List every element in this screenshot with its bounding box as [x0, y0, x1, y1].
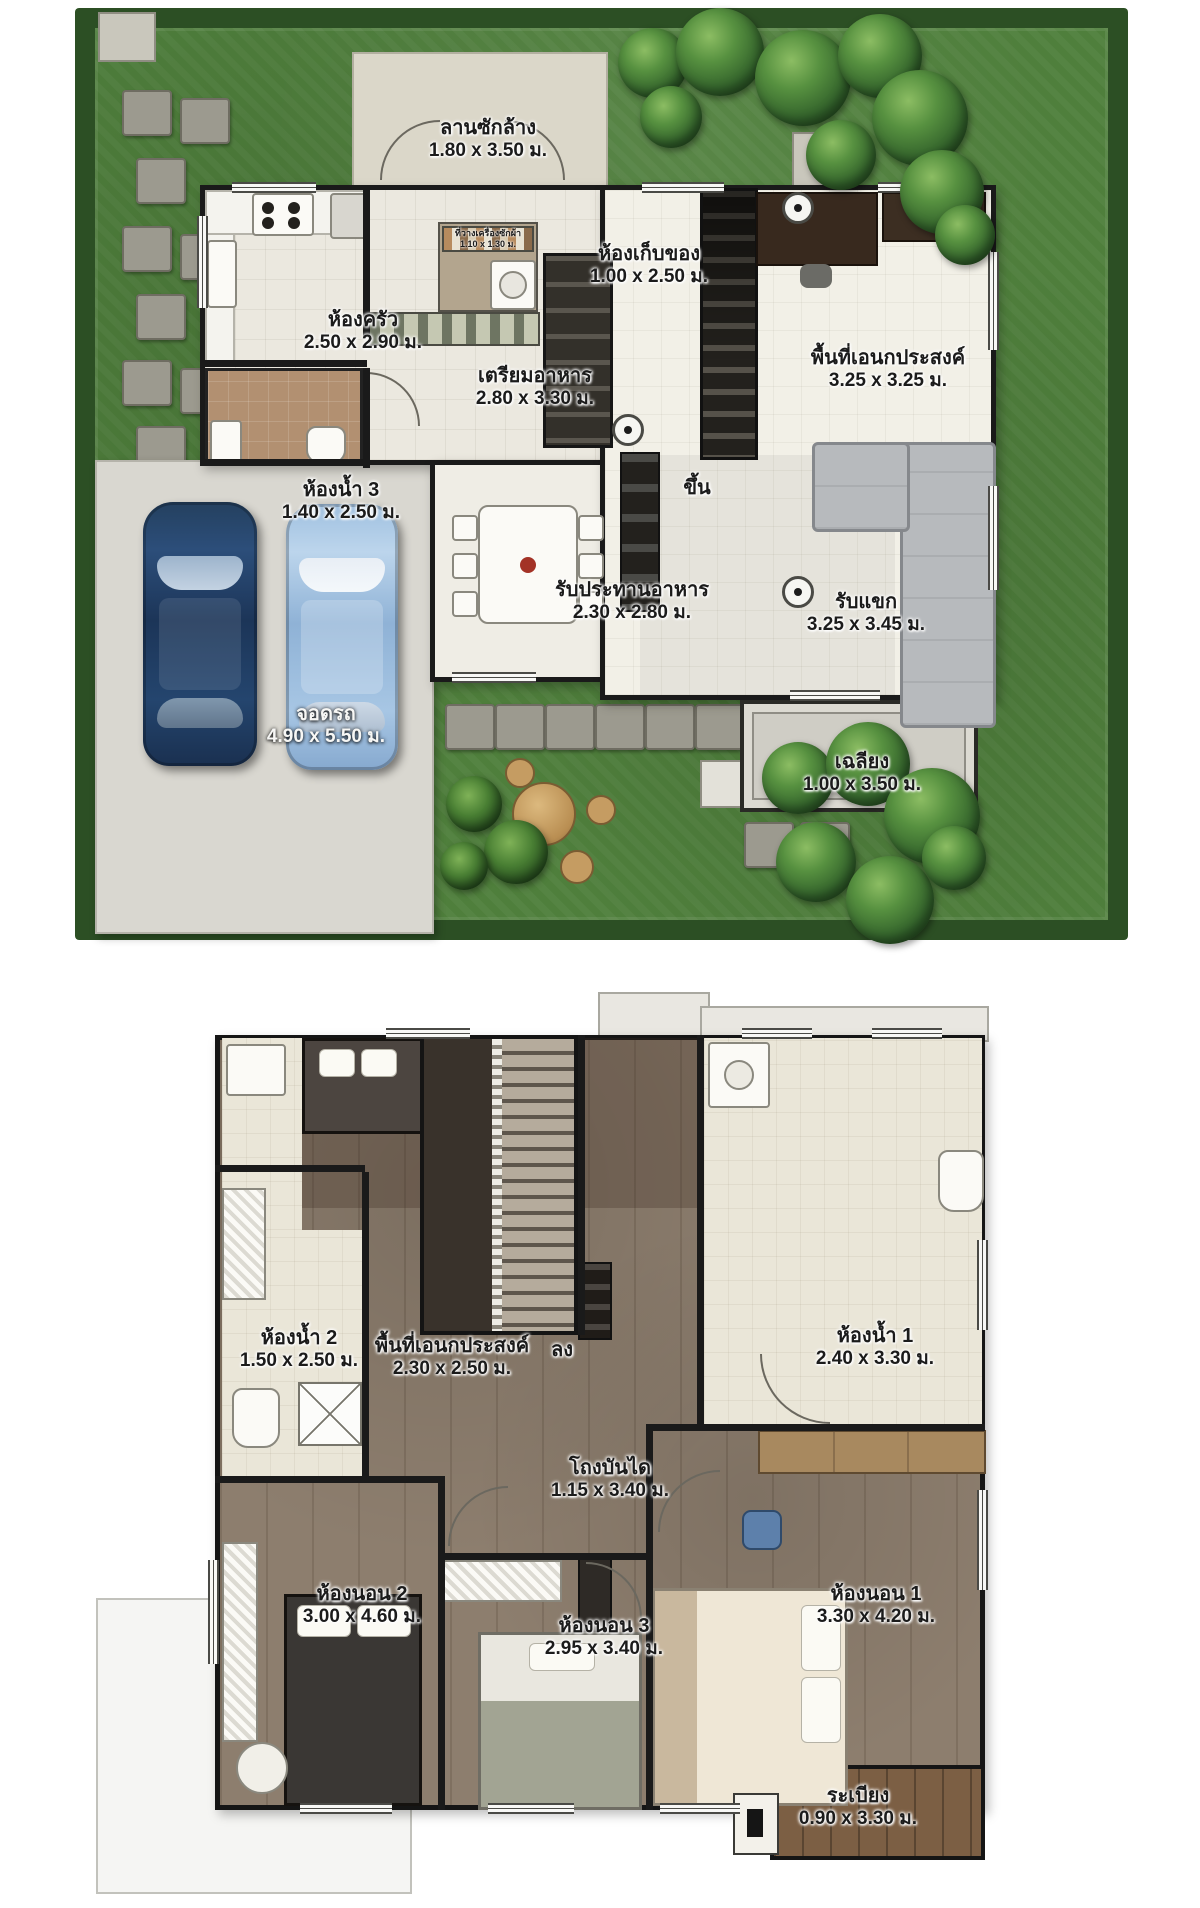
- tree-icon: [935, 205, 995, 265]
- desk-chair-icon: [800, 264, 832, 288]
- room-label-bedroom3: ห้องนอน 32.95 x 3.40 ม.: [545, 1614, 663, 1661]
- garden-stool-icon: [505, 758, 535, 788]
- bathroom-sink-icon: [210, 420, 242, 464]
- chair-icon: [452, 553, 478, 579]
- shower-icon: [298, 1382, 362, 1446]
- window: [232, 182, 316, 193]
- stepping-stone: [180, 98, 230, 144]
- chair-icon: [578, 553, 604, 579]
- room-label-food-prep: เตรียมอาหาร2.80 x 3.30 ม.: [476, 364, 594, 411]
- stepping-stone: [122, 226, 172, 272]
- palm-icon: [484, 820, 548, 884]
- garden-stool-icon: [586, 795, 616, 825]
- wardrobe-icon: [222, 1542, 258, 1742]
- stepping-stone: [545, 704, 595, 750]
- wardrobe-bed1-icon: [758, 1430, 986, 1474]
- window: [452, 672, 536, 683]
- tree-icon: [676, 8, 764, 96]
- chair-icon: [236, 1742, 288, 1794]
- wall: [362, 1172, 369, 1480]
- wall: [646, 1424, 985, 1431]
- palm-icon: [440, 842, 488, 890]
- wardrobe-icon: [222, 1188, 266, 1300]
- wall: [578, 1035, 585, 1335]
- stove-icon: [252, 193, 314, 236]
- room-label-balcony: ระเบียง0.90 x 3.30 ม.: [799, 1784, 917, 1831]
- stepping-stone: [495, 704, 545, 750]
- toilet-icon: [232, 1388, 280, 1448]
- stepping-stone: [445, 704, 495, 750]
- chair-icon: [452, 591, 478, 617]
- wall: [363, 368, 370, 468]
- wall: [438, 1476, 445, 1810]
- window: [660, 1803, 740, 1814]
- wall: [215, 1165, 365, 1172]
- tree-icon: [922, 826, 986, 890]
- sofa-icon: [900, 442, 996, 728]
- floor-plan-document: ลานซักล้าง1.80 x 3.50 ม. ห้องครัว2.50 x …: [0, 0, 1200, 1908]
- car-icon-dark-blue: [143, 502, 257, 766]
- window: [977, 1490, 988, 1590]
- ceiling-light-icon: [612, 414, 644, 446]
- bathroom-sink-icon: [708, 1042, 770, 1108]
- stepping-stone: [695, 704, 745, 750]
- stepping-stone: [122, 90, 172, 136]
- room-label-porch: เฉลียง1.00 x 3.50 ม.: [803, 750, 921, 797]
- wall: [215, 1476, 445, 1483]
- fridge-icon: [330, 193, 367, 239]
- room-label-multipurpose2: พื้นที่เอนกประสงค์2.30 x 2.50 ม.: [375, 1334, 529, 1381]
- window: [488, 1803, 574, 1814]
- room-label-storage: ห้องเก็บของ1.00 x 2.50 ม.: [590, 242, 708, 289]
- paver-pad: [98, 12, 156, 62]
- window: [988, 252, 999, 350]
- first-floor-plan: ลานซักล้าง1.80 x 3.50 ม. ห้องครัว2.50 x …: [0, 0, 1200, 958]
- room-label-bedroom1: ห้องนอน 13.30 x 4.20 ม.: [817, 1582, 935, 1629]
- wardrobe-icon: [438, 1560, 562, 1602]
- rear-window: [157, 698, 243, 728]
- stepping-stone: [122, 360, 172, 406]
- car-roof: [301, 600, 383, 694]
- window: [790, 690, 880, 701]
- window: [386, 1028, 470, 1039]
- room-label-stair-hall: โถงบันได1.15 x 3.40 ม.: [551, 1456, 669, 1503]
- chair-icon: [452, 515, 478, 541]
- room-label-kitchen: ห้องครัว2.50 x 2.90 ม.: [304, 308, 422, 355]
- windshield: [157, 556, 243, 590]
- washing-machine-icon: [490, 260, 536, 310]
- wall: [203, 360, 367, 367]
- room-label-dining: รับประทานอาหาร2.30 x 2.80 ม.: [555, 578, 709, 625]
- room-label-bedroom2: ห้องนอน 23.00 x 4.60 ม.: [303, 1582, 421, 1629]
- stair-railing: [492, 1039, 502, 1331]
- armchair-icon: [742, 1510, 782, 1550]
- room-label-living: รับแขก3.25 x 3.45 ม.: [807, 590, 925, 637]
- staircase-down: [420, 1035, 578, 1335]
- tree-icon: [806, 120, 876, 190]
- tree-icon: [640, 86, 702, 148]
- tree-icon: [755, 30, 851, 126]
- room-label-bathroom3: ห้องน้ำ 31.40 x 2.50 ม.: [282, 478, 400, 525]
- stepping-stone: [136, 294, 186, 340]
- window: [300, 1803, 392, 1814]
- stepping-stone: [645, 704, 695, 750]
- stepping-stone: [136, 158, 186, 204]
- window: [197, 216, 208, 308]
- windshield: [299, 558, 385, 592]
- palm-icon: [446, 776, 502, 832]
- bathroom-sink-icon: [226, 1044, 286, 1096]
- sofa-icon: [812, 442, 910, 532]
- chair-icon: [578, 515, 604, 541]
- desk-icon: [756, 192, 878, 266]
- room-label-multipurpose: พื้นที่เอนกประสงค์3.25 x 3.25 ม.: [811, 346, 965, 393]
- room-label-bathroom2: ห้องน้ำ 21.50 x 2.50 ม.: [240, 1326, 358, 1373]
- toilet-icon: [938, 1150, 984, 1212]
- window: [742, 1028, 812, 1039]
- room-label-bathroom1: ห้องน้ำ 12.40 x 3.30 ม.: [816, 1324, 934, 1371]
- tree-icon: [776, 822, 856, 902]
- tree-icon: [846, 856, 934, 944]
- staircase-up: [700, 188, 758, 460]
- room-label-wash-yard: ลานซักล้าง1.80 x 3.50 ม.: [429, 116, 547, 163]
- stairs-down-label: ลง: [551, 1338, 573, 1362]
- wall: [697, 1035, 704, 1430]
- room-label-laundry: ที่วางเครื่องซักผ้า1.10 x 1.30 ม.: [455, 228, 521, 251]
- stair-treads: [502, 1039, 574, 1331]
- porch-step: [700, 760, 744, 808]
- window: [988, 486, 999, 590]
- garden-stool-icon: [560, 850, 594, 884]
- window: [977, 1240, 988, 1330]
- kitchen-sink-icon: [207, 240, 237, 308]
- car-roof: [159, 598, 241, 690]
- window: [642, 182, 724, 193]
- ceiling-light-icon: [782, 192, 814, 224]
- second-floor-plan: ห้องน้ำ 21.50 x 2.50 ม. พื้นที่เอนกประสง…: [0, 958, 1200, 1908]
- wall: [200, 459, 368, 466]
- window: [872, 1028, 942, 1039]
- window: [208, 1560, 219, 1664]
- wall: [438, 1553, 653, 1560]
- stepping-stone: [595, 704, 645, 750]
- stairs-up-label: ขึ้น: [683, 476, 710, 500]
- room-label-parking: จอดรถ4.90 x 5.50 ม.: [267, 702, 385, 749]
